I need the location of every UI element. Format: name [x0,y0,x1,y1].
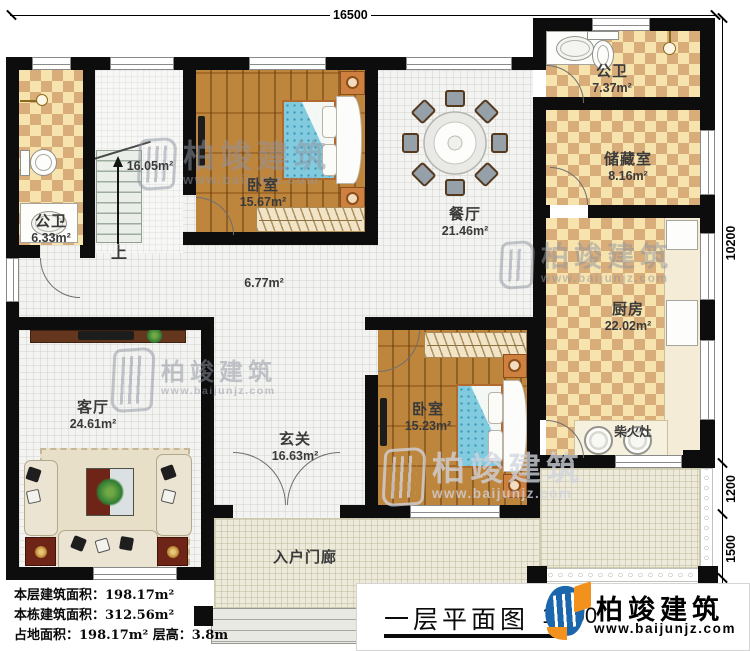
toilet-bowl [592,40,614,70]
wall [80,245,95,258]
counter-sink [666,300,698,346]
window [700,233,715,300]
wall [365,375,378,518]
wall [533,110,546,218]
wall [527,317,540,518]
toilet-bowl [30,149,57,176]
window [700,130,715,195]
wall [183,57,196,195]
dim-height: 10200 [724,223,738,264]
cushion [26,489,41,504]
pillow [322,106,337,138]
window [93,567,177,580]
wall [340,505,365,518]
nightstand [503,474,527,498]
logo-orange-shape [574,581,591,613]
wall [6,245,40,258]
porch-column [683,450,715,468]
window [406,57,512,70]
window [32,57,71,70]
wall [533,31,546,65]
side-table [25,537,56,566]
plant-icon [146,328,163,343]
stove-label: 柴火灶 [586,421,680,440]
window [592,18,650,31]
wall [365,57,378,245]
wall [365,317,378,330]
dim-width: 16500 [330,8,371,22]
porch-railing-bottom [528,568,713,582]
wall [201,505,233,518]
window [6,258,19,302]
tv-icon [380,398,387,446]
cushion [119,536,134,551]
dim-porch-b: 1500 [724,532,738,566]
nightstand [503,354,527,378]
window [410,505,500,518]
nightstand [340,71,365,95]
dim-porch-a: 1200 [724,472,738,506]
bed-headboard [503,380,527,472]
bed-headboard [336,96,362,184]
wardrobe [256,207,365,232]
wall [201,317,214,580]
porch-floor-right [540,468,700,568]
brand-logo-icon [545,584,591,640]
tv-icon [198,116,205,166]
stat-floor-area: 本层建筑面积：198.17m² [14,586,228,606]
wall [6,317,214,330]
stair-direction-line [117,166,119,244]
plan-title: 一层平面图 [384,600,529,636]
sink-basin [31,211,67,236]
shower-head-icon [36,94,48,106]
stat-building-area: 本栋建筑面积：312.56m² [14,606,228,626]
toilet-tank [587,31,619,40]
brand-url: www.baijunjz.com [594,621,736,636]
wall [365,317,540,330]
stat-site-area: 占地面积：198.17m² 层高：3.8m [14,626,228,646]
porch-railing-right [700,468,713,568]
pillow [322,144,337,176]
entry-steps [211,608,363,644]
window [249,57,326,70]
wall [83,57,95,258]
toilet-tank [20,150,30,176]
title-underline [384,634,560,638]
stair-up-arrow [113,156,123,167]
logo-orange-swoosh [547,627,567,640]
dining-set [400,88,510,198]
tv-icon [78,331,134,340]
plant-icon [96,478,124,506]
window [615,455,682,468]
pillow [488,430,503,462]
dimension-line-right [722,18,723,583]
side-table [157,537,188,566]
fridge [666,220,698,250]
floor-plan: 柴火灶 [0,0,750,651]
area-statistics: 本层建筑面积：198.17m² 本栋建筑面积：312.56m² 占地面积：198… [14,586,228,646]
pillow [488,392,503,424]
wall [533,205,550,218]
shower-head-icon [663,42,676,55]
wall [588,205,715,218]
window [110,57,174,70]
window [700,340,715,420]
